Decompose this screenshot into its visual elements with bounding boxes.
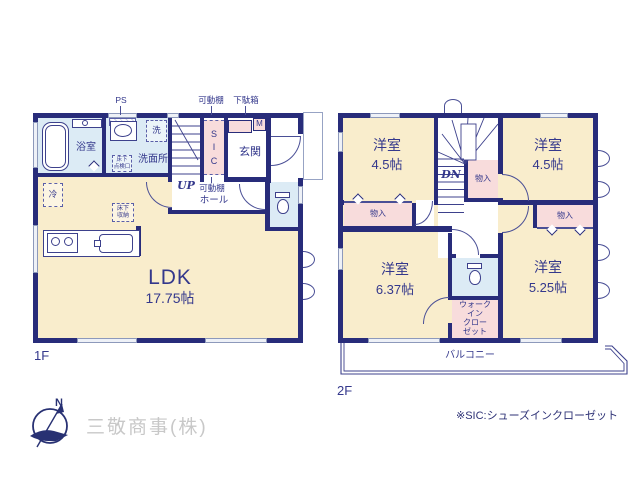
closet-left-label: 物入 — [344, 207, 412, 221]
meter-label: M — [253, 118, 266, 131]
sic-note: ※SIC:シューズインクローゼット — [456, 408, 640, 424]
dn-label: DN — [438, 168, 464, 182]
wall — [338, 226, 452, 232]
sic-label: S I C — [205, 126, 223, 170]
bathroom-label: 浴室 — [66, 142, 106, 154]
wall — [464, 198, 503, 202]
closet-stairs-label: 物入 — [468, 172, 498, 186]
shoe-box — [228, 120, 252, 133]
toilet-bowl-1f — [277, 199, 289, 214]
bathtub-inner — [45, 125, 66, 168]
shelf-hall-label: 可動棚 — [194, 184, 230, 194]
casement-window-icon — [598, 150, 610, 167]
room-bl-size: 6.37帖 — [359, 283, 431, 298]
casement-window-icon — [598, 181, 610, 198]
window — [338, 132, 343, 152]
window — [338, 248, 343, 270]
casement-window-icon — [444, 99, 462, 113]
room-bl-name: 洋室 — [362, 262, 428, 278]
ldk-name: LDK — [120, 266, 220, 290]
sink-faucet-icon — [94, 240, 101, 247]
stairs-1f — [172, 118, 200, 182]
casement-window-icon — [598, 244, 610, 261]
shelf-top-label: 可動棚 — [194, 96, 228, 106]
fridge-label: 冷 — [43, 183, 63, 207]
wall — [480, 254, 498, 258]
ldk-size: 17.75帖 — [120, 291, 220, 307]
wall — [200, 118, 204, 182]
shoe-box-label: 下駄箱 — [229, 96, 263, 106]
ps-label: PS — [109, 96, 133, 106]
floor2-label: 2F — [337, 383, 365, 399]
toilet-bowl-2f — [469, 270, 481, 285]
leader-line — [211, 177, 212, 183]
wall — [593, 113, 598, 343]
room-br-name: 洋室 — [518, 260, 578, 276]
genkan-label: 玄関 — [230, 145, 270, 159]
wall — [224, 177, 271, 182]
bath-faucet-icon — [82, 120, 88, 126]
stairs-2f-run — [438, 152, 464, 214]
washroom-label: 洗面所 — [132, 154, 174, 166]
room-tl-size: 4.5帖 — [357, 158, 417, 173]
window — [77, 338, 137, 343]
entry-porch-slab — [303, 112, 323, 180]
floor1-label: 1F — [34, 348, 62, 364]
window — [33, 225, 38, 273]
laundry-label: 洗 — [146, 124, 167, 138]
window — [33, 122, 38, 168]
company-name: 三敬商事(株) — [86, 415, 256, 441]
casement-window-icon — [598, 282, 610, 299]
burner-icon — [51, 237, 60, 246]
burner-icon — [64, 237, 73, 246]
balcony-label: バルコニー — [425, 349, 515, 363]
wall — [265, 182, 270, 231]
kitchen-sink — [99, 234, 133, 253]
floor-hatch-label: 床下 点検口 — [112, 155, 132, 172]
wall — [498, 118, 503, 174]
compass-n-label: N — [52, 396, 66, 410]
leader-line — [120, 106, 121, 115]
wall — [265, 227, 303, 231]
leader-line — [245, 106, 246, 115]
room-tr-size: 4.5帖 — [518, 158, 578, 173]
window — [370, 113, 400, 118]
floorplan-canvas: PS 可動棚 下駄箱 浴室 洗面所 洗 S I C M 玄関 UP 可動棚 ホー… — [0, 0, 640, 480]
wall — [224, 118, 228, 182]
room-br-size: 5.25帖 — [515, 281, 581, 296]
casement-window-icon — [303, 251, 315, 268]
wall — [498, 233, 503, 338]
window — [205, 338, 267, 343]
walkin-closet-label: ウォーク イン クロー ゼット — [452, 301, 498, 337]
toilet-tank-1f — [275, 192, 290, 198]
toilet-tank-2f — [467, 263, 482, 269]
washbasin-bowl — [114, 124, 132, 137]
room-tr-name: 洋室 — [518, 138, 578, 154]
wall — [168, 210, 265, 214]
leader-line — [211, 106, 212, 115]
casement-window-icon — [303, 283, 315, 300]
window — [540, 113, 568, 118]
floor-storage-label: 床下 収納 — [112, 203, 134, 222]
wall — [33, 173, 168, 177]
room-tl-name: 洋室 — [357, 138, 417, 154]
closet-right-label: 物入 — [537, 209, 593, 223]
window — [298, 186, 303, 204]
hall-label: ホール — [196, 195, 232, 207]
